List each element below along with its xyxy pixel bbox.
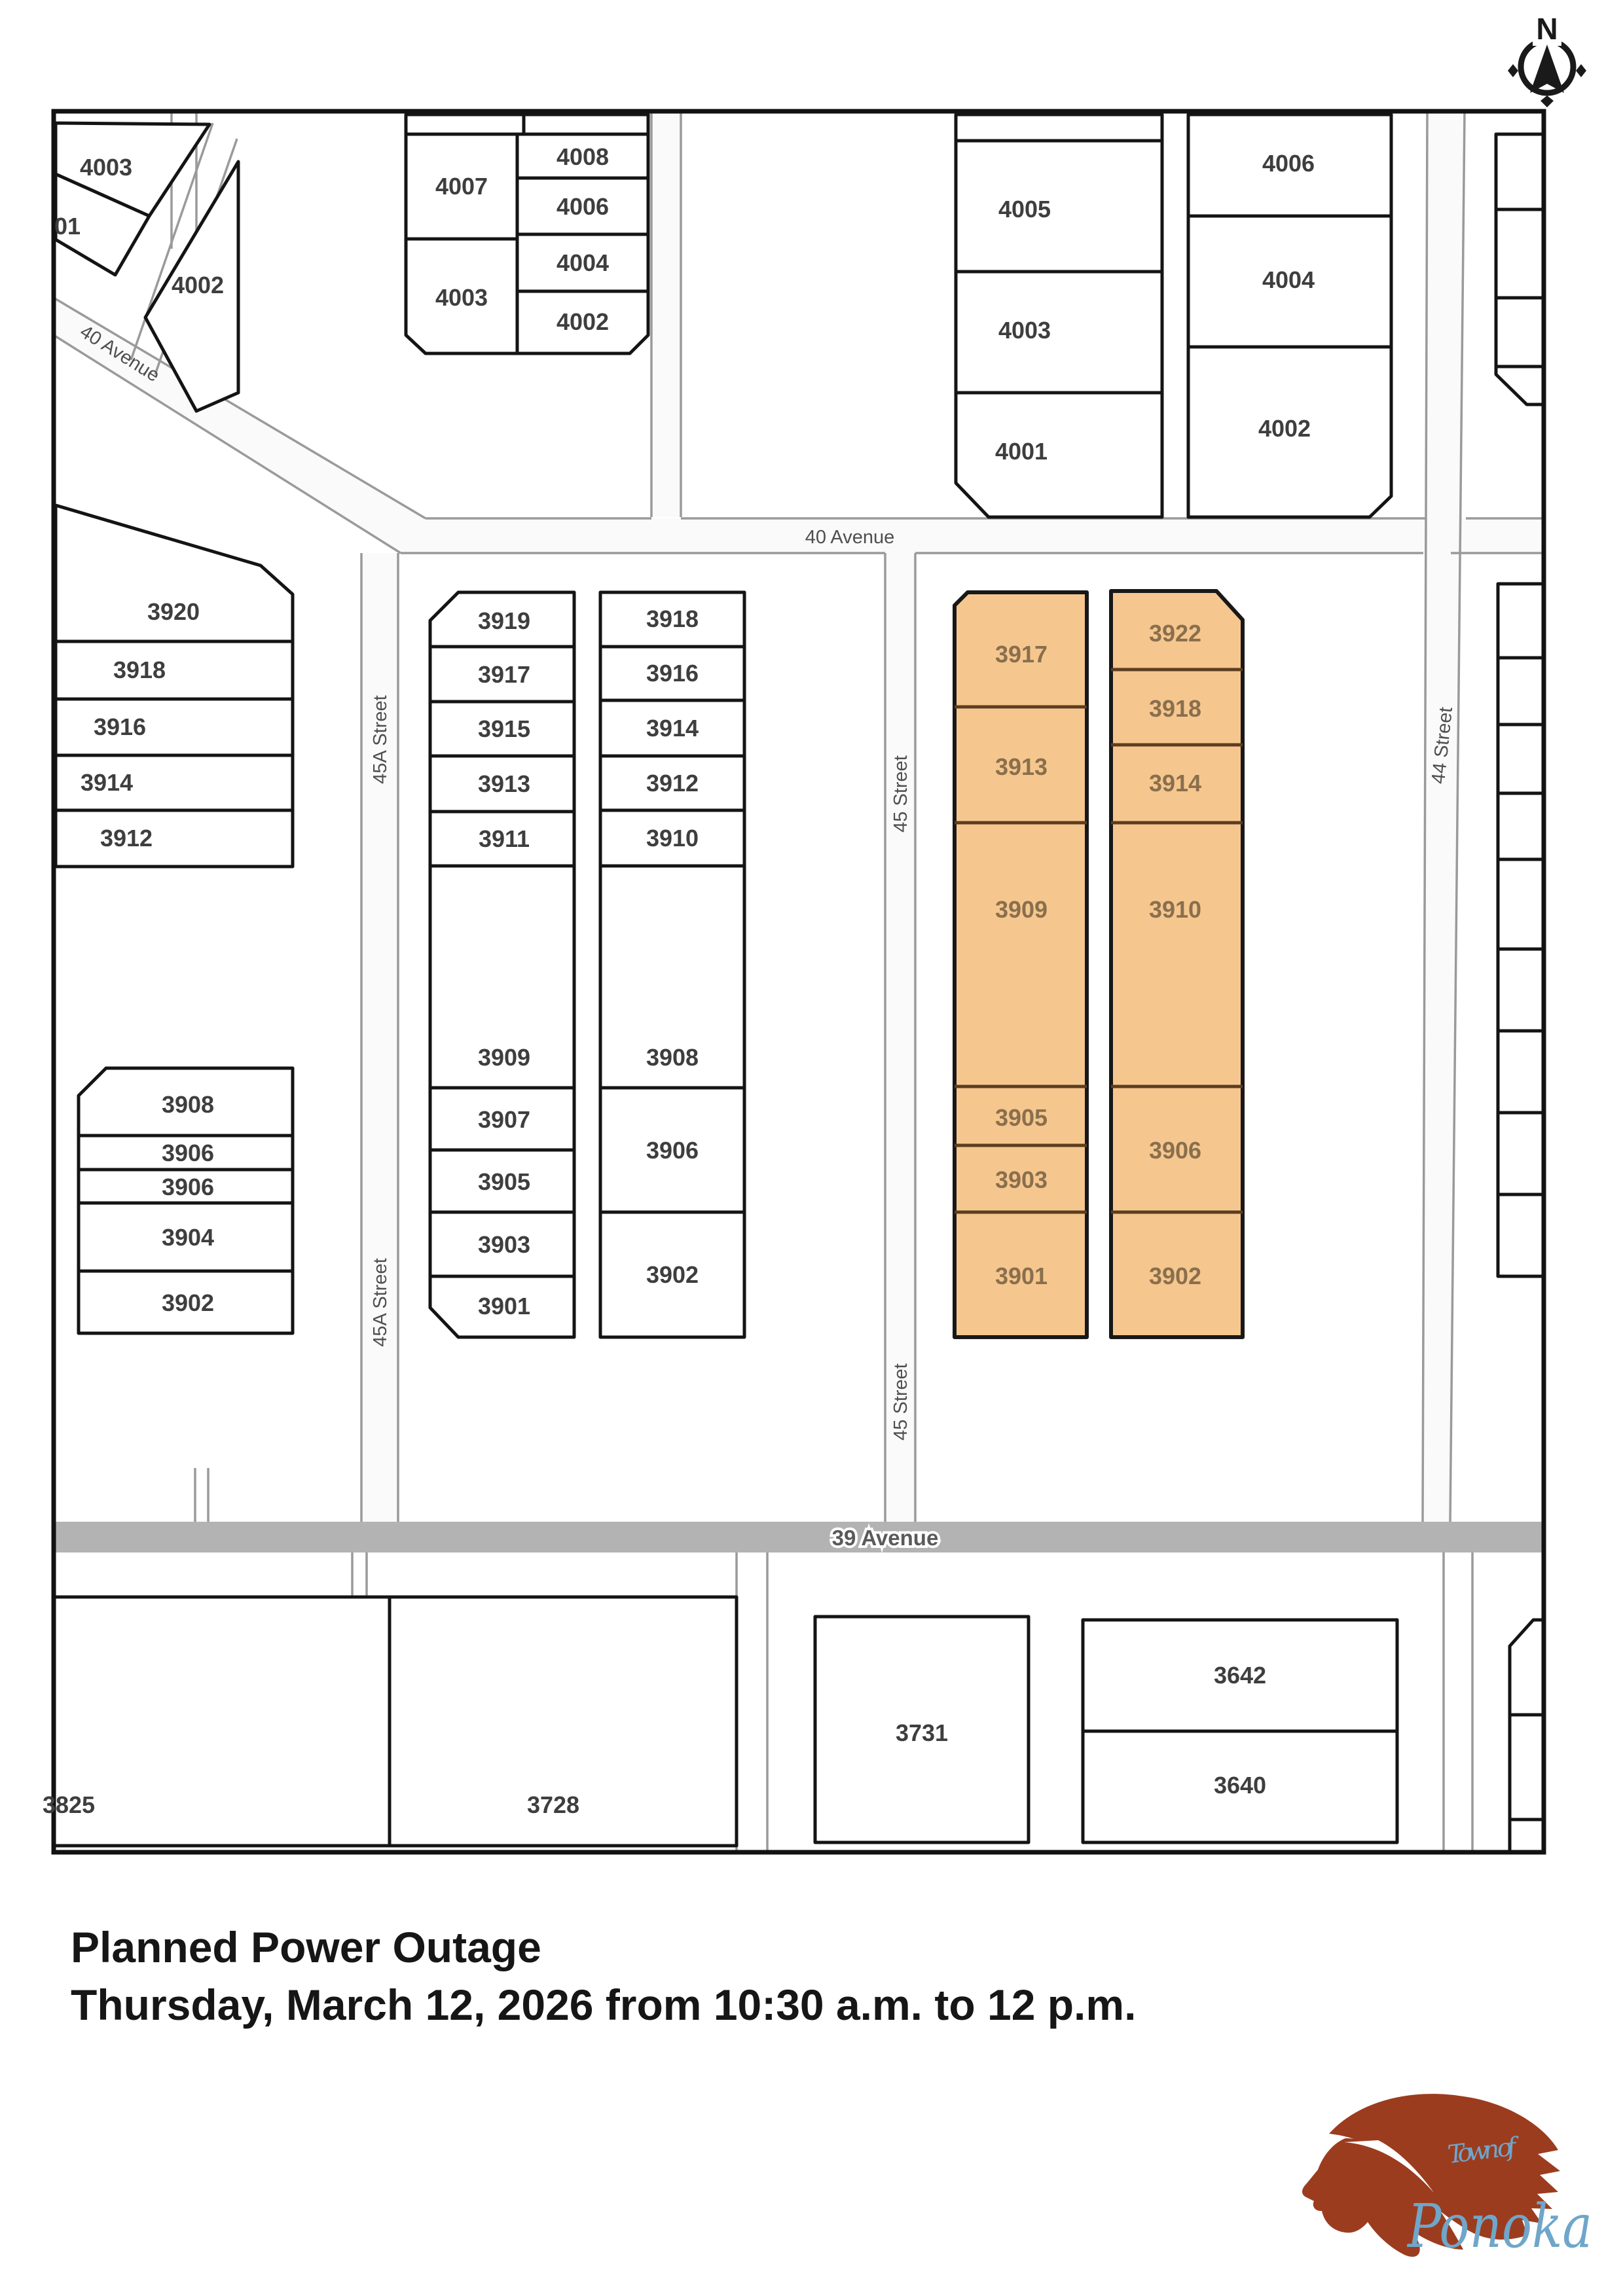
lot-label: 3920 [147, 598, 200, 625]
outage-lot-label: 3918 [1149, 695, 1201, 722]
lot-label: 4004 [1262, 266, 1315, 293]
block-45-west [600, 592, 744, 1337]
street-label-45-lower: 45 Street [890, 1363, 911, 1441]
avenue39-band [54, 1522, 1544, 1552]
lot-label: 3906 [162, 1139, 214, 1166]
lot-label: 3907 [478, 1106, 530, 1133]
right-strip-top-outline [1496, 134, 1544, 404]
lot-label: 4003 [998, 317, 1051, 344]
lot-label: 3914 [81, 769, 133, 796]
lot-label: 3908 [646, 1044, 699, 1071]
right-edge-lots [1496, 134, 1544, 1852]
outage-lot-label: 3913 [995, 753, 1048, 780]
lot-label: 3640 [1214, 1772, 1266, 1799]
lot-label: 4002 [1258, 415, 1311, 442]
block-ne-left [956, 115, 1162, 517]
lot-label: 4002 [172, 272, 224, 298]
street-label-45-upper: 45 Street [890, 755, 911, 833]
outage-lot-label: 3909 [995, 896, 1048, 923]
lot-label: 3728 [527, 1791, 579, 1818]
outage-lot-label: 3917 [995, 641, 1048, 668]
compass-south-diamond [1541, 96, 1554, 107]
lot-label: 3908 [162, 1091, 214, 1118]
lot-label: 3906 [646, 1137, 699, 1164]
outage-lot-label: 3922 [1149, 620, 1201, 647]
lot-label: 3913 [478, 770, 530, 797]
lot-label: 4003 [435, 284, 488, 311]
lot-label: 3911 [479, 825, 530, 852]
lot-label: 3916 [94, 713, 146, 740]
lot-label: 4007 [435, 173, 488, 200]
lot-label: 3909 [478, 1044, 530, 1071]
lot-label: 3731 [896, 1719, 948, 1746]
street-label-45a-lower: 45A Street [370, 1258, 391, 1346]
lot-label: 3825 [43, 1791, 95, 1818]
lot-label: 3902 [646, 1261, 699, 1288]
lot-label: 3905 [478, 1168, 530, 1195]
block-45a-east-outline [430, 592, 574, 1337]
lot-label: 3904 [162, 1224, 214, 1251]
right-strip-bottom-outline [1510, 1620, 1544, 1852]
lot-label: 3914 [646, 715, 699, 742]
page-canvas: 4003 01 4002 4007 4003 4008 4006 4004 40… [0, 0, 1623, 2296]
lot-label: 4004 [556, 249, 609, 276]
lot-label: 3642 [1214, 1662, 1266, 1689]
lot-label: 3918 [113, 656, 166, 683]
outage-lot-label: 3901 [995, 1263, 1048, 1289]
south-lots [54, 1597, 1397, 1846]
outage-lot-label: 3910 [1149, 896, 1201, 923]
ponoka-logo: Town of Ponoka [1302, 2094, 1592, 2261]
lot-label: 3919 [478, 607, 530, 634]
lot-label: 3910 [646, 825, 699, 852]
lot-label: 4001 [995, 438, 1048, 465]
lot-label: 3906 [162, 1174, 214, 1200]
outage-block-west [955, 592, 1087, 1337]
lot-label: 3912 [100, 825, 153, 852]
block-ne-left-outline [956, 115, 1162, 517]
outage-block-west-outline [955, 592, 1087, 1337]
outage-lot-label: 3905 [995, 1104, 1048, 1131]
block-nw [406, 115, 648, 353]
outage-lot-label: 3914 [1149, 770, 1201, 797]
block-west-upper [56, 505, 293, 867]
block-west-upper-outline [56, 505, 293, 867]
lot-label: 3901 [478, 1293, 530, 1319]
map: 4003 01 4002 4007 4003 4008 4006 4004 40… [43, 111, 1544, 1852]
lot-label: 4003 [80, 154, 132, 181]
lot-label: 01 [54, 213, 81, 240]
lot-label: 3902 [162, 1289, 214, 1316]
street-label-39-avenue: 39 Avenue [832, 1526, 939, 1550]
block-45-west-outline [600, 592, 744, 1337]
street-label-40-avenue: 40 Avenue [805, 527, 895, 548]
caption-schedule: Thursday, March 12, 2026 from 10:30 a.m.… [71, 1981, 1136, 2029]
lot-label: 3918 [646, 605, 699, 632]
north-arrow-icon: N [1508, 12, 1586, 107]
lot-label: 4008 [556, 143, 609, 170]
compass-n-label: N [1536, 12, 1558, 46]
lot-label: 3917 [478, 661, 530, 688]
caption-title: Planned Power Outage [71, 1923, 541, 1971]
lot-label: 4005 [998, 196, 1051, 223]
right-strip-mid-outline [1498, 584, 1544, 1276]
compass-needle [1530, 45, 1564, 93]
lot-label: 4006 [1262, 150, 1315, 177]
lot-label: 4002 [556, 308, 609, 335]
lot-3825 [54, 1597, 390, 1846]
street-label-45a-upper: 45A Street [370, 695, 391, 783]
lot-label: 3916 [646, 660, 699, 687]
upper-mid-street-corridor [651, 111, 681, 517]
logo-name: Ponoka [1406, 2191, 1592, 2261]
outage-lot-label: 3906 [1149, 1137, 1201, 1164]
outage-lot-label: 3903 [995, 1166, 1048, 1193]
caption: Planned Power Outage Thursday, March 12,… [71, 1923, 1136, 2029]
lot-label: 3903 [478, 1231, 530, 1258]
lot-label: 4006 [556, 193, 609, 220]
compass-west-diamond [1508, 64, 1518, 77]
outage-lot-label: 3902 [1149, 1263, 1201, 1289]
block-45a-east [430, 592, 574, 1337]
compass-east-diamond [1576, 64, 1586, 77]
lot-label: 3912 [646, 770, 699, 797]
lot-label: 3915 [478, 715, 530, 742]
